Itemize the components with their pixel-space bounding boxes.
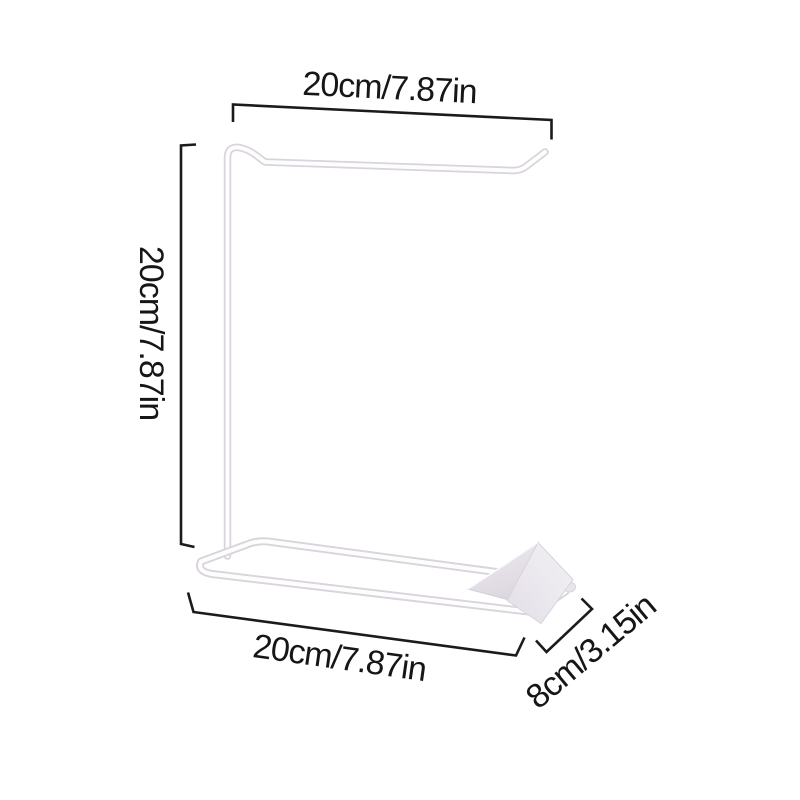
dimension-bracket-top-width xyxy=(233,105,552,140)
dimension-label-top-width: 20cm/7.87in xyxy=(302,65,478,111)
wire-stand xyxy=(200,147,576,623)
diagram-canvas: 20cm/7.87in 20cm/7.87in 20cm/7.87in 8cm/… xyxy=(0,0,800,800)
dimension-bracket-height xyxy=(181,145,196,548)
dimension-diagram-svg: 20cm/7.87in 20cm/7.87in 20cm/7.87in 8cm/… xyxy=(0,0,800,800)
dimension-label-base-width: 20cm/7.87in xyxy=(251,627,429,689)
wire-stand-post-and-top-bar xyxy=(228,147,546,556)
dimension-label-height: 20cm/7.87in xyxy=(132,246,170,420)
dimension-annotations: 20cm/7.87in 20cm/7.87in 20cm/7.87in 8cm/… xyxy=(132,65,663,717)
